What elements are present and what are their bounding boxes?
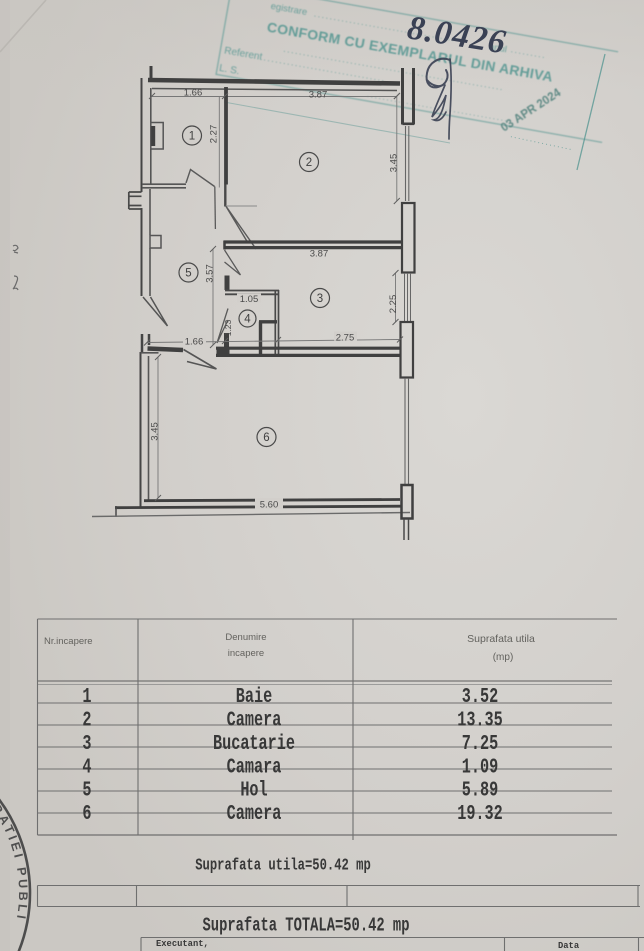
svg-text:3.87: 3.87 <box>310 249 329 260</box>
svg-text:5.60: 5.60 <box>260 500 279 511</box>
svg-text:6: 6 <box>82 800 91 825</box>
svg-text:3: 3 <box>82 730 91 755</box>
svg-text:Suprafata TOTALA=50.42 mp: Suprafata TOTALA=50.42 mp <box>203 914 410 936</box>
svg-text:Nr.incapere: Nr.incapere <box>44 636 93 647</box>
svg-text:Baie: Baie <box>236 683 272 708</box>
svg-text:19.32: 19.32 <box>457 800 503 825</box>
svg-text:4: 4 <box>244 314 251 326</box>
svg-text:3.45: 3.45 <box>389 154 400 173</box>
svg-text:3.57: 3.57 <box>205 264 216 283</box>
svg-text:5.89: 5.89 <box>462 777 498 802</box>
svg-text:Denumire: Denumire <box>225 632 266 643</box>
svg-text:2.25: 2.25 <box>388 295 399 314</box>
svg-text:Camera: Camera <box>227 707 282 732</box>
svg-text:3.87: 3.87 <box>309 90 328 101</box>
svg-text:1.66: 1.66 <box>184 88 203 99</box>
svg-text:1: 1 <box>189 131 195 143</box>
svg-text:incapere: incapere <box>228 648 264 659</box>
svg-text:Camera: Camera <box>227 800 282 825</box>
svg-text:1.05: 1.05 <box>240 294 259 305</box>
svg-text:3: 3 <box>317 293 323 305</box>
svg-text:13.35: 13.35 <box>457 707 503 732</box>
svg-text:5: 5 <box>185 268 191 280</box>
svg-text:3.45: 3.45 <box>150 422 161 441</box>
svg-text:1.09: 1.09 <box>462 754 498 779</box>
svg-text:Suprafata utila=50.42 mp: Suprafata utila=50.42 mp <box>195 857 371 875</box>
svg-text:6: 6 <box>263 432 269 444</box>
svg-text:Camara: Camara <box>227 754 282 779</box>
svg-text:1: 1 <box>82 683 91 708</box>
svg-text:5: 5 <box>82 777 91 802</box>
svg-text:2: 2 <box>306 157 312 169</box>
svg-text:7.25: 7.25 <box>462 730 498 755</box>
svg-text:(mp): (mp) <box>493 652 514 663</box>
svg-text:3.52: 3.52 <box>462 683 498 708</box>
svg-text:2: 2 <box>82 707 91 732</box>
svg-text:2.75: 2.75 <box>336 333 355 344</box>
svg-text:Suprafata utila: Suprafata utila <box>467 633 535 645</box>
svg-text:Bucatarie: Bucatarie <box>213 730 295 755</box>
svg-text:Data: Data <box>558 941 580 951</box>
svg-text:1.66: 1.66 <box>185 337 204 348</box>
svg-text:Executant,: Executant, <box>156 939 209 949</box>
svg-text:4: 4 <box>82 754 91 779</box>
svg-text:Hol: Hol <box>240 777 267 802</box>
svg-text:2.27: 2.27 <box>209 125 220 144</box>
svg-text:1.23: 1.23 <box>223 319 233 336</box>
